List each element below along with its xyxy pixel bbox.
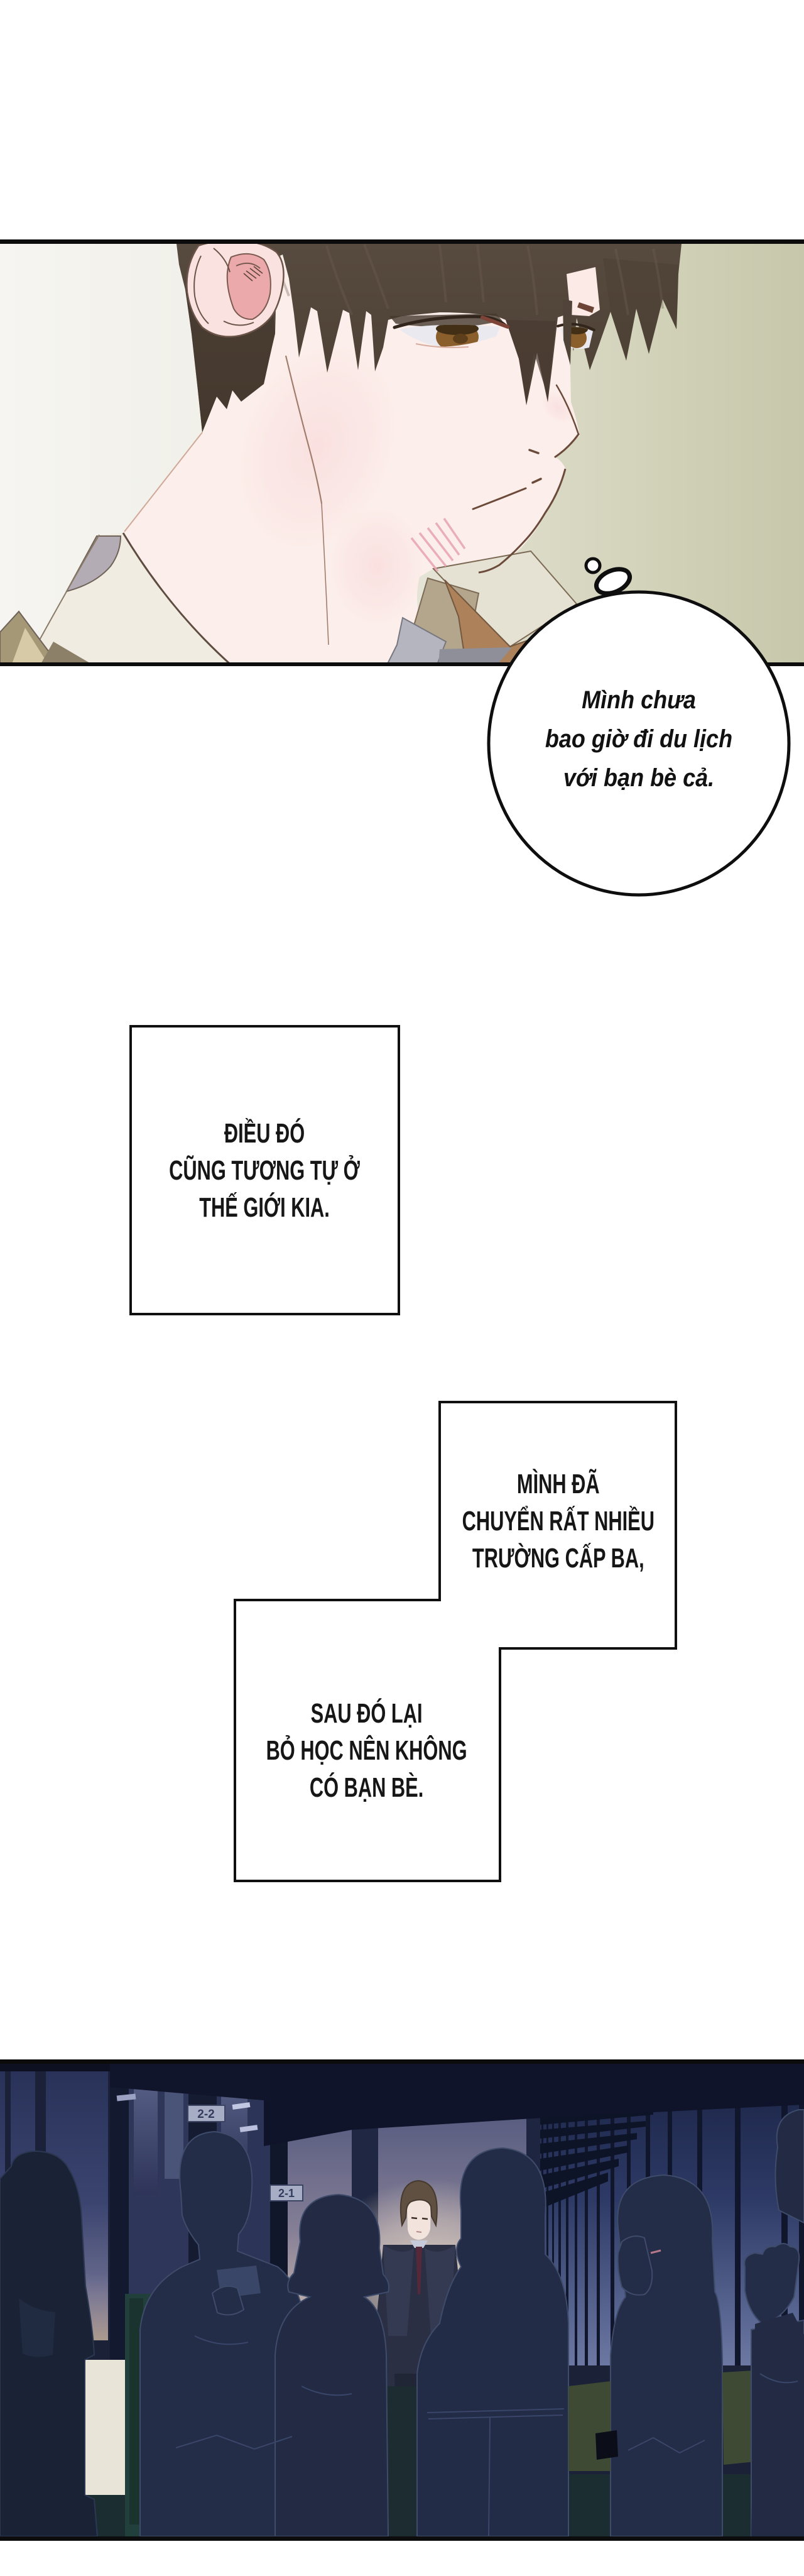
svg-text:2-2: 2-2 (197, 2108, 214, 2121)
svg-text:2-1: 2-1 (278, 2187, 295, 2200)
